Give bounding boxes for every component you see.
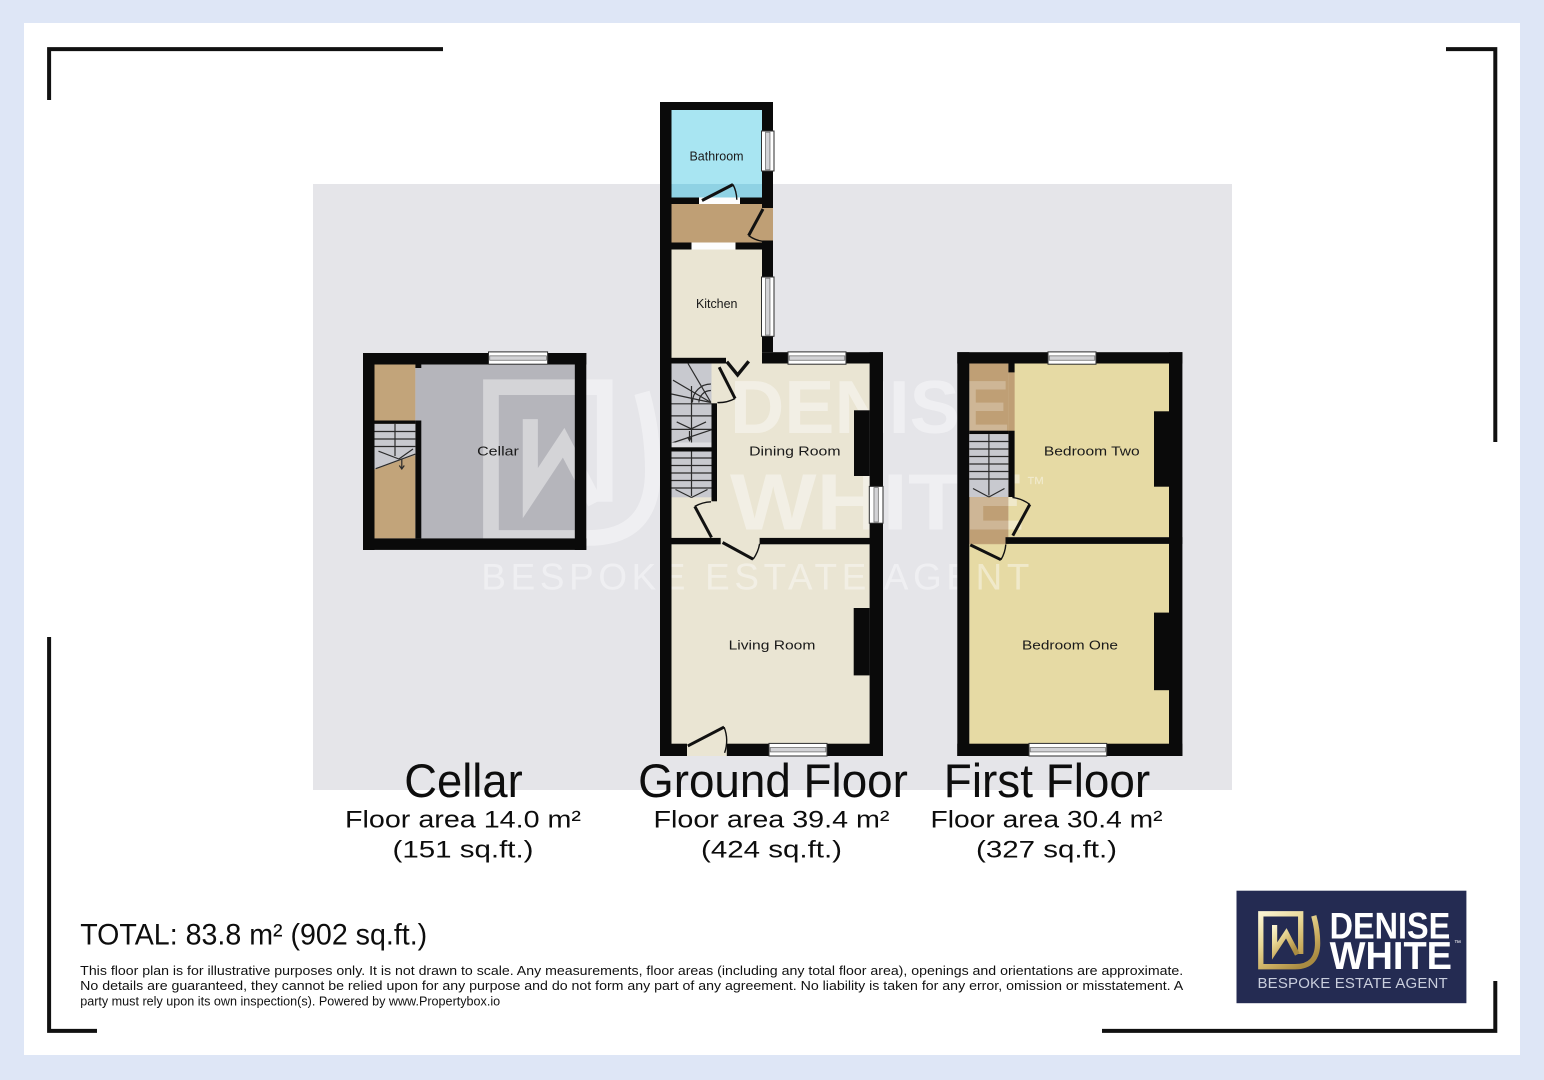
svg-text:Bedroom One: Bedroom One (1022, 638, 1118, 653)
svg-text:Bathroom: Bathroom (690, 149, 744, 164)
svg-text:TOTAL: 83.8 m² (902 sq.ft.): TOTAL: 83.8 m² (902 sq.ft.) (80, 919, 427, 952)
svg-text:Kitchen: Kitchen (696, 296, 738, 311)
svg-text:BESPOKE ESTATE AGENT: BESPOKE ESTATE AGENT (1258, 975, 1448, 992)
svg-text:First Floor: First Floor (944, 754, 1150, 807)
svg-text:Living Room: Living Room (729, 638, 816, 653)
svg-text:™: ™ (1454, 940, 1461, 947)
svg-text:(424 sq.ft.): (424 sq.ft.) (701, 837, 842, 864)
svg-text:party must rely upon its own i: party must rely upon its own inspection(… (80, 994, 500, 1008)
svg-text:No details are guaranteed, the: No details are guaranteed, they cannot b… (80, 979, 1184, 993)
svg-text:WHITE: WHITE (1330, 935, 1452, 978)
svg-text:Dining Room: Dining Room (749, 444, 840, 459)
svg-text:Floor area 30.4 m²: Floor area 30.4 m² (931, 807, 1163, 834)
svg-text:Ground Floor: Ground Floor (638, 754, 908, 807)
svg-text:Cellar: Cellar (477, 444, 520, 459)
svg-text:This floor plan is for illustr: This floor plan is for illustrative purp… (80, 964, 1183, 978)
svg-text:Bedroom Two: Bedroom Two (1044, 444, 1140, 459)
svg-text:Floor area 14.0 m²: Floor area 14.0 m² (345, 807, 581, 834)
svg-text:(151 sq.ft.): (151 sq.ft.) (393, 837, 534, 864)
svg-text:(327 sq.ft.): (327 sq.ft.) (976, 837, 1117, 864)
svg-text:™: ™ (1026, 474, 1045, 495)
svg-text:BESPOKE ESTATE AGENT: BESPOKE ESTATE AGENT (481, 557, 1029, 598)
svg-text:Cellar: Cellar (404, 754, 522, 807)
svg-text:Floor area 39.4 m²: Floor area 39.4 m² (654, 807, 890, 834)
